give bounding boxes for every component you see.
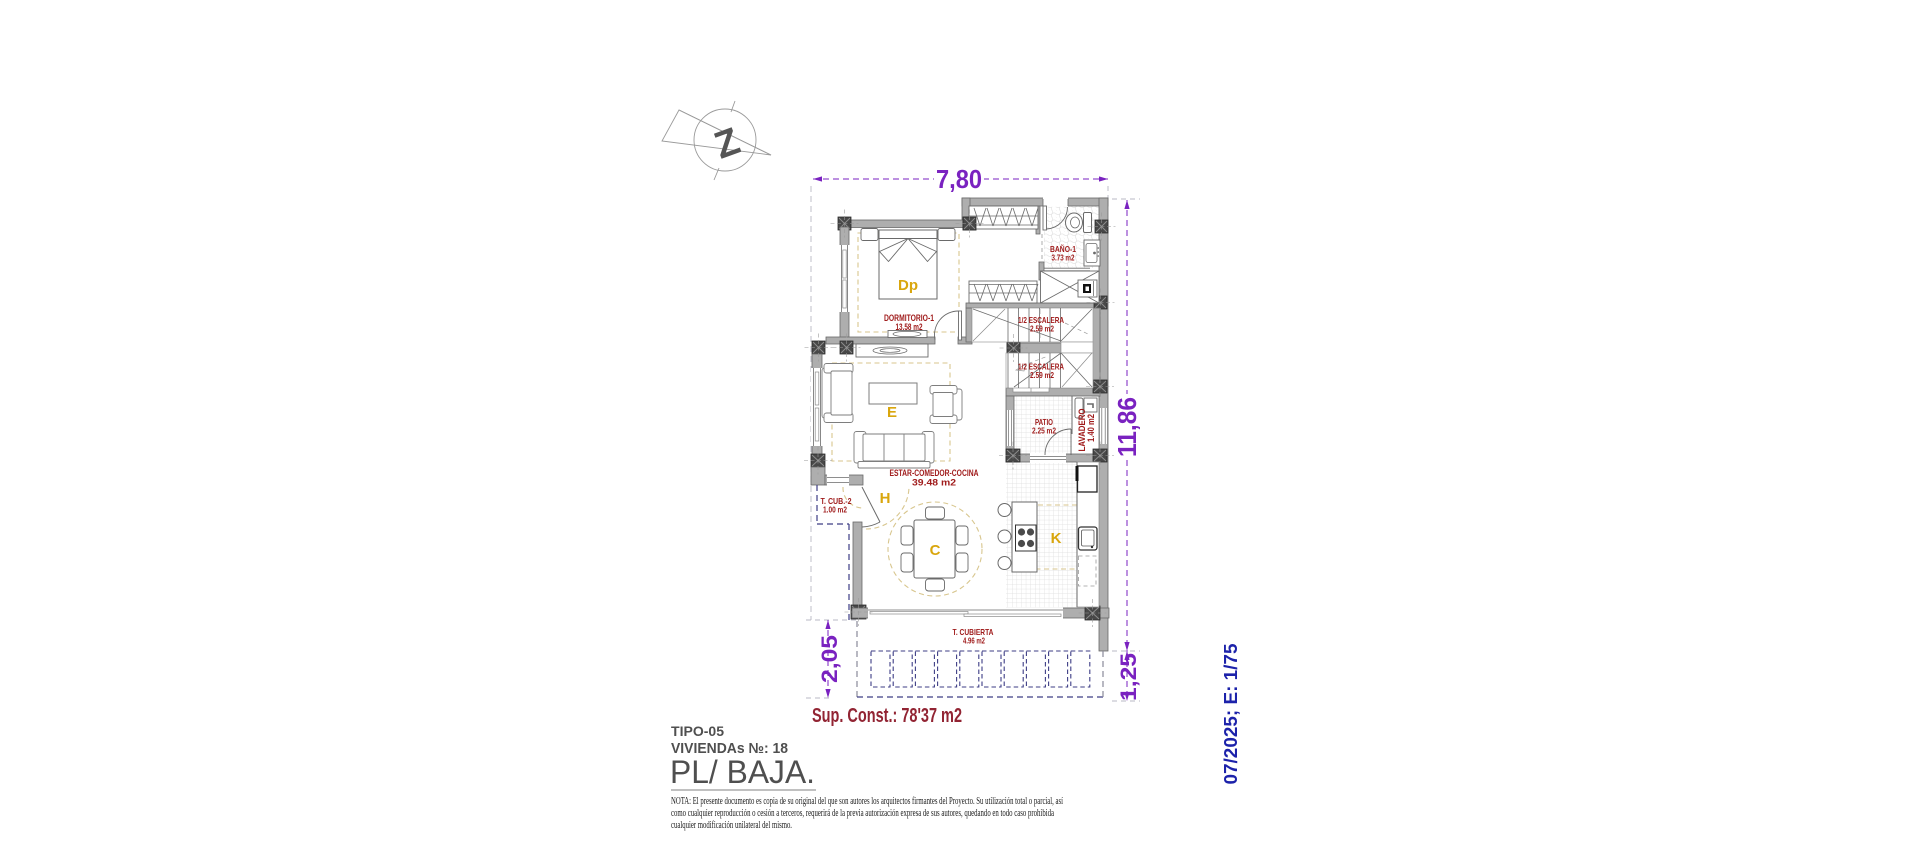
svg-text:TIPO-05: TIPO-05 [671,724,725,739]
svg-text:PL/ BAJA.: PL/ BAJA. [670,754,815,790]
svg-text:K: K [1051,530,1062,547]
svg-text:como cualquier reproducción o: como cualquier reproducción o cesión a t… [671,808,1054,819]
svg-text:NOTA: El presente documento es: NOTA: El presente documento es copia de … [671,796,1063,807]
svg-text:3.73 m2: 3.73 m2 [1052,253,1075,263]
svg-text:1,25: 1,25 [1116,653,1141,701]
svg-text:Sup. Const.: 78'37 m2: Sup. Const.: 78'37 m2 [812,705,962,727]
svg-text:11,86: 11,86 [1112,397,1142,457]
svg-text:2.59 m2: 2.59 m2 [1030,324,1054,334]
svg-text:07/2025; E: 1/75: 07/2025; E: 1/75 [1221,644,1241,785]
svg-text:2.59 m2: 2.59 m2 [1030,370,1054,380]
svg-text:39.48 m2: 39.48 m2 [912,478,956,489]
svg-text:4.96 m2: 4.96 m2 [963,636,985,646]
svg-text:2.25 m2: 2.25 m2 [1032,426,1056,436]
svg-text:Dp: Dp [898,277,918,294]
svg-text:7,80: 7,80 [936,164,982,194]
svg-text:13.58 m2: 13.58 m2 [896,322,923,332]
svg-text:H: H [880,490,891,507]
svg-text:C: C [930,542,941,559]
svg-text:2,05: 2,05 [817,635,842,683]
svg-text:1.40 m2: 1.40 m2 [1086,414,1096,442]
svg-text:E: E [887,404,897,421]
svg-text:1.00 m2: 1.00 m2 [823,505,847,515]
svg-text:cualquier modificación unilate: cualquier modificación unilateral del mi… [671,820,792,831]
